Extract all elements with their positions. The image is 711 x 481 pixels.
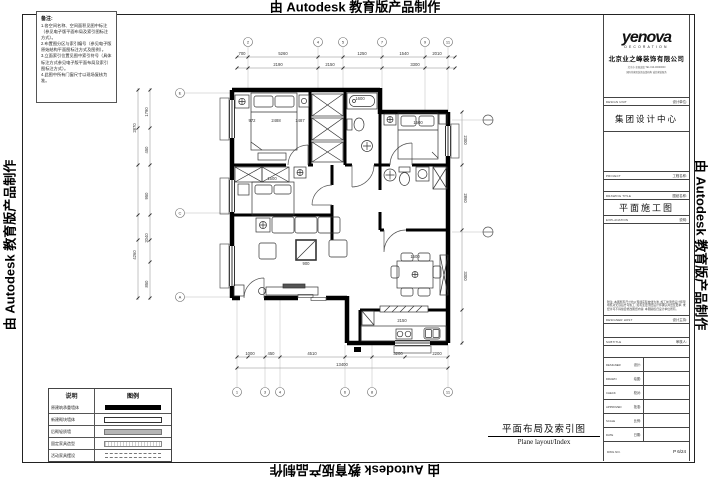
axis-bubble: E (176, 89, 185, 98)
signature-value-cell (644, 400, 689, 413)
legend-swatch-cell (95, 414, 171, 425)
axis-bubble: A (176, 293, 185, 302)
dim-label: 2010 (432, 51, 442, 56)
legend-swatch-outline (104, 417, 162, 423)
legend-header-row: 说明 图例 (49, 389, 171, 402)
legend-label: 后砌轻质墙 (49, 426, 95, 437)
title-block-notes-cell: 附注: 本图所有尺寸均以现场实际放线为准, 施工前须经设计师现场核对无误后方可施… (604, 224, 689, 316)
project-header: PROJECT 工程名称: (604, 172, 689, 180)
dim-label: 4260 (132, 250, 137, 260)
legend-label: 原建筑承重墙体 (49, 402, 95, 413)
dim-label: 950 (144, 192, 149, 200)
dim-label: 3300 (463, 271, 468, 281)
svg-text:C: C (179, 211, 182, 216)
dim-label: 1790 (144, 107, 149, 117)
legend-label: 活动家具摆设 (49, 450, 95, 461)
axis-bubble: 1 (233, 388, 242, 397)
dim-label: 700 (239, 51, 247, 56)
legend-table: 说明 图例 原建筑承重墙体新建砌块墙体后砌轻质墙固定家具造型活动家具摆设 (48, 388, 172, 462)
legend-label: 新建砌块墙体 (49, 414, 95, 425)
dim-label: 3200 (393, 351, 403, 356)
dim-label: 1487 (295, 118, 305, 123)
notes-line: 1.各空间名称、空间面积见图中标注（参见电子版平面布局及索引图标注方式）。 (41, 23, 112, 41)
design-unit-value: 集团设计中心 (604, 106, 689, 132)
design-unit-header: DESIGN UNIT 设计单位: (604, 98, 689, 106)
signature-value-cell (644, 386, 689, 399)
logo-subtext: DECORATION (604, 45, 689, 49)
dim-label: 1500 (410, 254, 420, 259)
drawing-title: 平面布局及索引图 Plane layout/Index (488, 421, 600, 446)
notes-lines: 1.各空间名称、空间面积见图中标注（参见电子版平面布局及索引图标注方式）。2.布… (41, 23, 112, 84)
dwg-no-label: DWG NO. (607, 450, 621, 454)
bathroom1-fixtures (347, 93, 377, 152)
subtitle-en: SUBTITLE (606, 340, 621, 344)
axis-bubble: 2 (244, 38, 253, 47)
elevation-markers (354, 115, 493, 352)
dim-label: 2860 (463, 193, 468, 203)
signature-rows: DESIGNER设计:DRAWN绘图:CHECK校对:APPROVED批准:SC… (604, 358, 689, 442)
legend-row: 固定家具造型 (49, 437, 171, 449)
project-value-cell (604, 180, 689, 192)
dim-label: 972 (249, 118, 257, 123)
furniture (234, 93, 448, 341)
dim-label: 850 (144, 280, 149, 288)
general-notes-box: 备注: 1.各空间名称、空间面积见图中标注（参见电子版平面布局及索引图标注方式）… (36, 11, 117, 103)
dim-label: 2870 (132, 123, 137, 133)
legend-header-symbol: 图例 (95, 389, 171, 402)
explanation-en: EXPLANATION (606, 218, 628, 222)
drawing-title-label-cn: 图纸名称: (672, 193, 687, 198)
axis-bubble: 5 (339, 38, 348, 47)
design-unit-cn: 设计单位: (672, 99, 687, 104)
signature-row: CHECK校对: (604, 386, 689, 400)
notes-line: 3.立面索引位置见图中索引符号（具体标注方式参见电子版平面布局及索引图标注方式）… (41, 53, 112, 71)
drawing-title-header: DRAWING TITLE 图纸名称: (604, 192, 689, 200)
dim-label: 2150 (397, 318, 407, 323)
company-name: 北京业之峰装饰有限公司 (604, 54, 689, 63)
axis-bubble: 6 (341, 388, 350, 397)
dining-furniture (391, 253, 448, 296)
legend-swatch-dotted (104, 441, 162, 447)
dimension-ticks (137, 56, 464, 370)
signature-row: DRAWN绘图: (604, 372, 689, 386)
drawing-title-value: 平面施工图 (604, 200, 689, 216)
signature-row: DATE日期: (604, 428, 689, 442)
dim-label: 900 (303, 261, 311, 266)
axis-bubble: 11 (444, 38, 453, 47)
page-number: P 6/24 (673, 449, 686, 454)
legend-swatch-cell (95, 438, 171, 449)
watermark-right: 由 Autodesk 教育版产品制作 (693, 160, 711, 330)
signature-value-cell (644, 428, 689, 441)
cad-sheet: { "watermark": { "text": "由 Autodesk 教育版… (0, 0, 711, 480)
legend-swatch-cell (95, 402, 171, 413)
company-address-1: 北京市·全国连锁 TEL:010-00000000 (608, 65, 685, 69)
dim-label: 1600 (355, 96, 365, 101)
watermark-left: 由 Autodesk 教育版产品制作 (0, 160, 19, 330)
drawing-title-cn: 平面布局及索引图 (488, 421, 600, 437)
explanation-header: EXPLANATION 说明: (604, 216, 689, 224)
watermark-bottom: 由 Autodesk 教育版产品制作 (270, 462, 440, 481)
signature-value-cell (644, 358, 689, 371)
title-block: yenova DECORATION 北京业之峰装饰有限公司 北京市·全国连锁 T… (603, 15, 690, 461)
notes-title: 备注: (41, 15, 112, 22)
dim-label: 450 (268, 351, 276, 356)
legend-label: 固定家具造型 (49, 438, 95, 449)
dim-label: 4510 (307, 351, 317, 356)
bedroom1-furniture (235, 93, 309, 160)
project-cn: 工程名称: (672, 173, 687, 178)
notes-line: 4.此图中所有门窗尺寸以现场复核为准。 (41, 72, 112, 84)
dim-label: 5260 (278, 51, 288, 56)
axis-bubble: 3 (261, 388, 270, 397)
project-en: PROJECT (606, 174, 621, 178)
designer-host-cn: 设计主持: (672, 317, 687, 322)
dim-label: 1540 (399, 51, 409, 56)
subtitle-cn: 审核人: (676, 339, 687, 344)
dim-label: 2040 (144, 233, 149, 243)
walls (232, 88, 448, 343)
bathroom2-fixtures (384, 167, 447, 189)
legend-swatch-gray (104, 429, 162, 435)
signature-label: DESIGNER设计: (604, 358, 644, 371)
legend-row: 后砌轻质墙 (49, 425, 171, 437)
signature-row: APPROVED批准: (604, 400, 689, 414)
living-room-furniture (234, 217, 347, 296)
legend-row: 新建砌块墙体 (49, 413, 171, 425)
legend-row: 原建筑承重墙体 (49, 402, 171, 413)
dim-label: 2150 (325, 62, 335, 67)
designer-host-value-cell (604, 324, 689, 338)
legend-swatch-solid-black (105, 405, 161, 410)
explanation-cn: 说明: (679, 217, 687, 222)
legend-swatch-dashed (105, 453, 161, 458)
axis-bubble: 4 (314, 38, 323, 47)
dim-label: 13400 (336, 362, 348, 367)
subtitle-header: SUBTITLE 审核人: (604, 338, 689, 346)
watermark-top: 由 Autodesk 教育版产品制作 (270, 0, 440, 16)
signature-label: DRAWN绘图: (604, 372, 644, 385)
dim-label: 1000 (245, 351, 255, 356)
company-address-2: 国际化家居装饰连锁机构 诚信家装服务 (608, 70, 685, 74)
dim-label: 1500 (413, 120, 423, 125)
axis-bubble: 4 (276, 388, 285, 397)
signature-row: DESIGNER设计: (604, 358, 689, 372)
legend-header-desc: 说明 (49, 389, 95, 402)
dim-label: 1250 (357, 51, 367, 56)
section-marker (354, 347, 361, 352)
dim-label: 2190 (273, 62, 283, 67)
bedroom3-furniture (235, 167, 306, 215)
axis-bubble: C (176, 209, 185, 218)
design-unit-en: DESIGN UNIT (606, 100, 627, 104)
legend-swatch-cell (95, 450, 171, 461)
axis-bubble: 8 (368, 388, 377, 397)
legend-body: 原建筑承重墙体新建砌块墙体后砌轻质墙固定家具造型活动家具摆设 (49, 402, 171, 461)
company-logo-cell: yenova DECORATION 北京业之峰装饰有限公司 北京市·全国连锁 T… (604, 15, 689, 98)
legend-swatch-cell (95, 426, 171, 437)
sheet-number-row: DWG NO. P 6/24 (604, 442, 689, 461)
notes-line: 2.布置图分区与索引编号（参见电子版原始结构平面图标注方式及图例）。 (41, 41, 112, 53)
axis-bubble: 7 (378, 38, 387, 47)
signature-value-cell (644, 414, 689, 427)
signature-value-cell (644, 372, 689, 385)
dim-label: 2200 (432, 351, 442, 356)
designer-host-en: DESIGNER HOST (606, 318, 633, 322)
axis-bubble: 11 (444, 388, 453, 397)
signature-label: SCALE比例: (604, 414, 644, 427)
signature-label: DATE日期: (604, 428, 644, 441)
empty-cell (604, 132, 689, 172)
title-block-notes: 附注: 本图所有尺寸均以现场实际放线为准, 施工前须经设计师现场核对无误后方可施… (607, 301, 686, 312)
dim-label: 450 (144, 146, 149, 154)
signature-label: CHECK校对: (604, 386, 644, 399)
dim-label: 1500 (267, 176, 277, 181)
subtitle-value-cell (604, 346, 689, 358)
svg-text:A: A (179, 295, 182, 300)
svg-text:E: E (179, 91, 182, 96)
axis-bubble: 9 (421, 38, 430, 47)
dim-label: 2300 (463, 135, 468, 145)
legend-row: 活动家具摆设 (49, 449, 171, 461)
designer-host-header: DESIGNER HOST 设计主持: (604, 316, 689, 324)
signature-label: APPROVED批准: (604, 400, 644, 413)
closet-wardrobes (312, 94, 343, 162)
drawing-title-en: Plane layout/Index (488, 437, 600, 446)
dim-label: 3300 (410, 62, 420, 67)
signature-row: SCALE比例: (604, 414, 689, 428)
dim-label: 2488 (271, 118, 281, 123)
drawing-title-label-en: DRAWING TITLE (606, 194, 631, 198)
